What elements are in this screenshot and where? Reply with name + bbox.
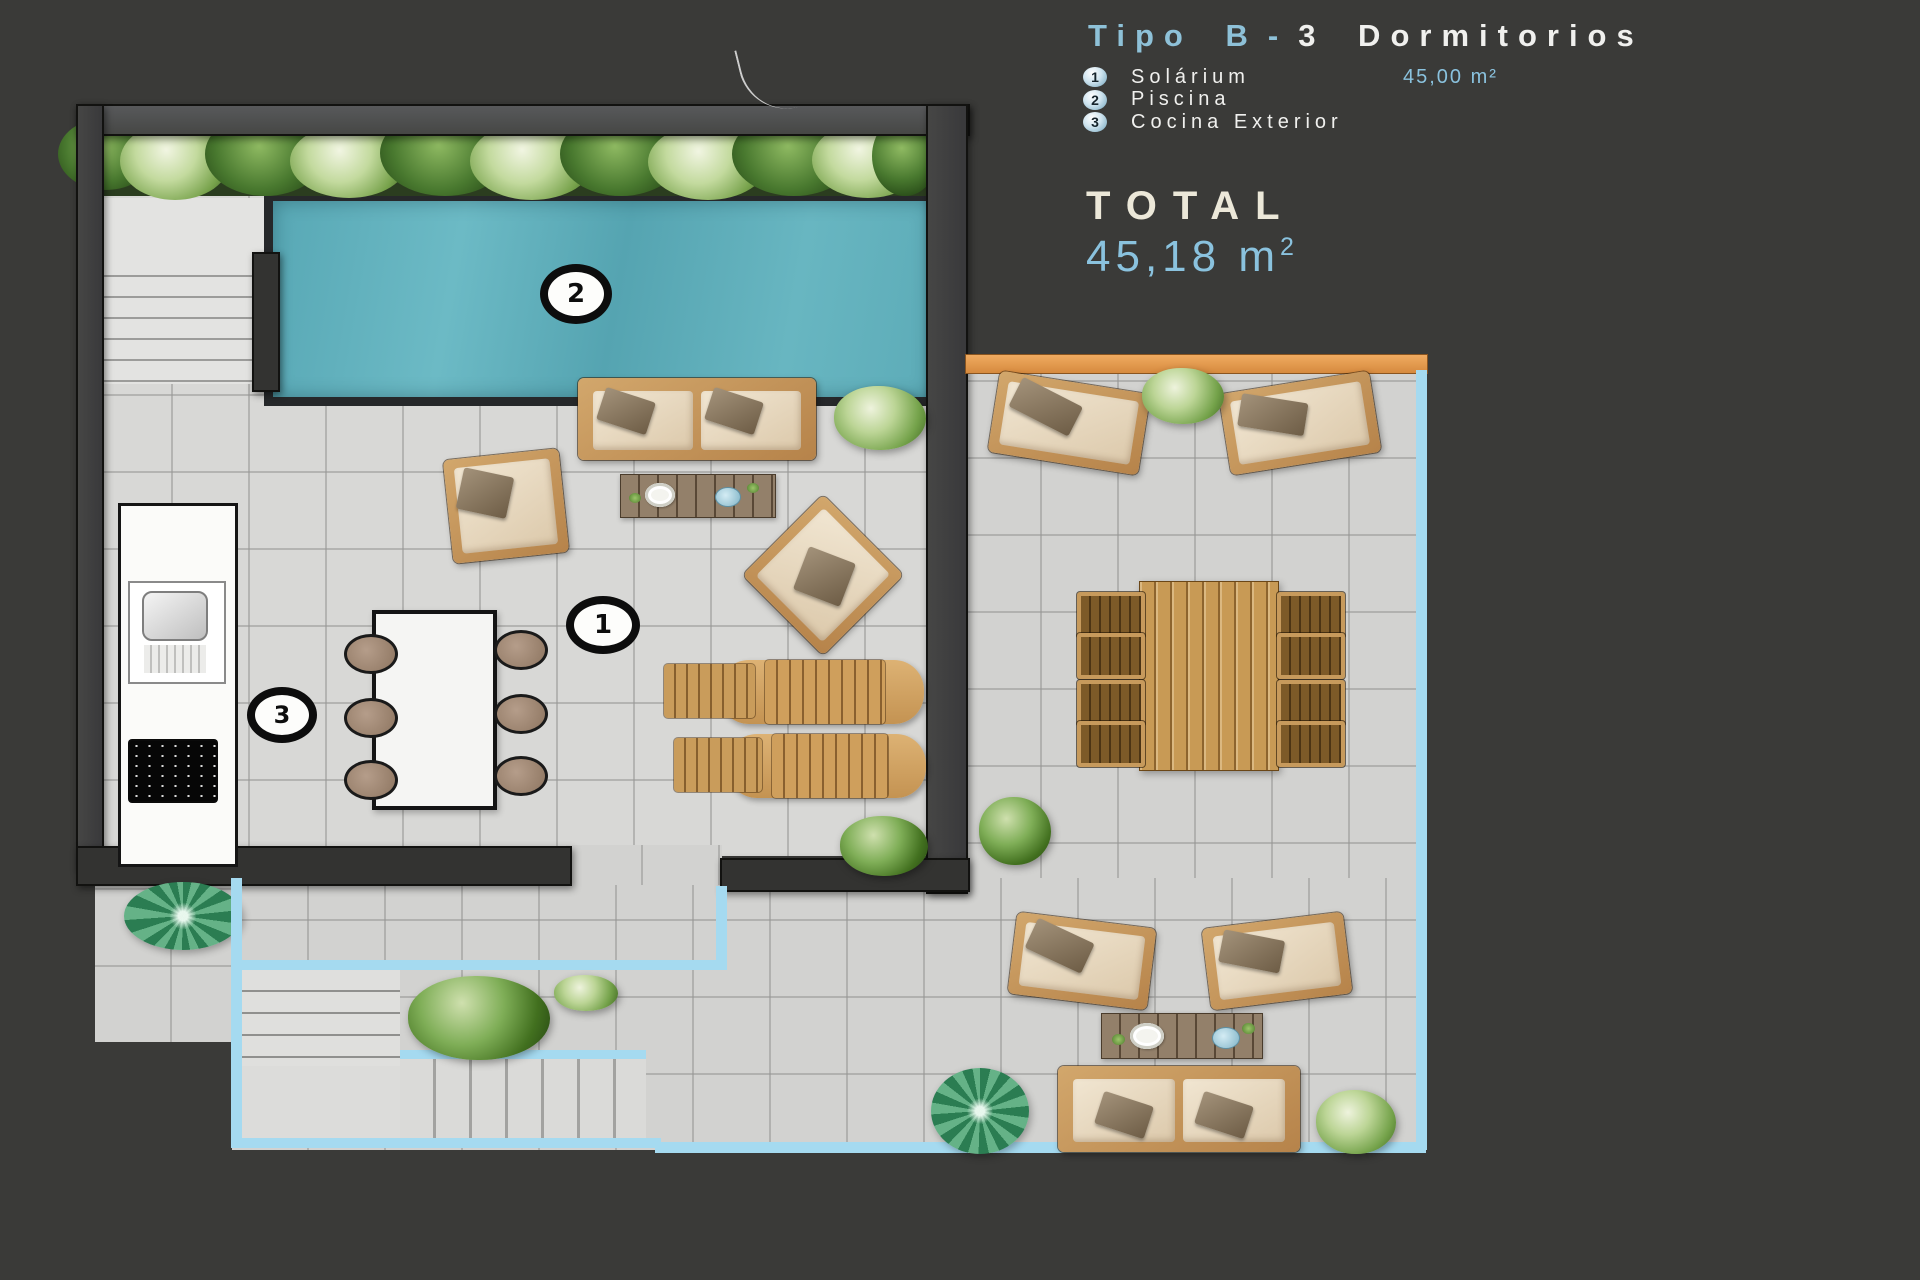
legend-bullet-3: 3 [1083, 112, 1107, 132]
bowl [1212, 1027, 1240, 1049]
terrace-dining-table [1139, 581, 1279, 771]
coffee-table [620, 474, 776, 518]
bush [840, 816, 928, 876]
bush [979, 797, 1051, 865]
title-accent: Tipo B [1088, 18, 1258, 53]
lounger-backrest [674, 738, 762, 792]
kitchen-sink [128, 581, 226, 684]
outdoor-sofa [578, 378, 816, 460]
terrace-edge-line [716, 886, 727, 968]
wall-top [76, 104, 970, 136]
wall-right [926, 104, 968, 894]
marker-solarium: 1 [566, 596, 640, 654]
legend: 1 Solárium 45,00 m² 2 Piscina 3 Cocina E… [1083, 66, 1498, 134]
dish [1130, 1023, 1164, 1049]
stairs-upper-flight [242, 970, 400, 1066]
page-title: Tipo B-3 Dormitorios [1088, 18, 1644, 54]
dining-chair [494, 694, 548, 734]
bush [554, 975, 618, 1011]
sink-drainer [144, 645, 206, 673]
stairs-landing [242, 1066, 400, 1142]
wall-bottom-east [720, 858, 970, 892]
doorway-floor-patch [566, 845, 722, 885]
pool-stairs [98, 198, 266, 384]
terrace-edge-line [231, 878, 242, 1148]
bowl [715, 487, 741, 507]
terrace-edge-line [655, 1142, 1426, 1153]
sun-lounger [674, 734, 926, 798]
lounger-seat [765, 660, 885, 724]
marker-cocina: 3 [247, 687, 317, 743]
armchair [1008, 912, 1157, 1010]
marker-piscina: 2 [540, 264, 612, 324]
total-value-sup: 2 [1280, 233, 1299, 261]
terrace-dining-chair [1277, 680, 1345, 726]
total-value: 45,18 m2 [1086, 232, 1299, 282]
pool-side-wall [252, 252, 280, 392]
legend-label: Piscina [1131, 88, 1403, 111]
cooktop [130, 741, 216, 801]
dining-chair [344, 698, 398, 738]
dish [645, 483, 675, 507]
terrace-dining-chair [1277, 592, 1345, 638]
terrace-dining-chair [1077, 721, 1145, 767]
pool-stairs-treads [98, 256, 266, 384]
terrace-dining-chair [1277, 721, 1345, 767]
kitchen-counter [118, 503, 238, 867]
title-rest: 3 Dormitorios [1298, 18, 1644, 53]
terrace-edge-line [231, 1138, 661, 1148]
wall-left [76, 104, 104, 870]
armchair [1202, 912, 1353, 1011]
table-plant [1112, 1034, 1125, 1045]
table-plant [629, 493, 641, 503]
outdoor-sofa [1058, 1066, 1300, 1152]
legend-bullet-2: 2 [1083, 90, 1107, 110]
lounger-seat [772, 734, 888, 798]
palm-plant [931, 1068, 1029, 1154]
terrace-dining-chair [1077, 633, 1145, 679]
dining-chair [494, 756, 548, 796]
lounger-backrest [664, 664, 755, 718]
total-value-number: 45,18 m [1086, 232, 1280, 281]
legend-area: 45,00 m² [1403, 66, 1498, 89]
armchair [443, 448, 569, 564]
total-label: TOTAL [1086, 184, 1296, 229]
coffee-table [1101, 1013, 1263, 1059]
floor-plan-canvas: 2 1 3 Tipo B-3 Dormitorios 1 Solárium 45… [0, 0, 1920, 1280]
bush [408, 976, 550, 1060]
terrace-dining-chair [1277, 633, 1345, 679]
title-dash: - [1268, 18, 1288, 53]
legend-bullet-1: 1 [1083, 67, 1107, 87]
legend-label: Solárium [1131, 66, 1403, 89]
stairs-lower-flight [400, 1058, 646, 1142]
legend-item-cocina: 3 Cocina Exterior [1083, 111, 1498, 134]
table-plant [1242, 1023, 1255, 1034]
dining-chair [344, 760, 398, 800]
palm-plant [124, 882, 242, 950]
dining-chair [494, 630, 548, 670]
dining-chair [344, 634, 398, 674]
legend-item-piscina: 2 Piscina [1083, 89, 1498, 112]
sink-basin [142, 591, 208, 641]
legend-item-solarium: 1 Solárium 45,00 m² [1083, 66, 1498, 89]
bush [1142, 368, 1224, 424]
bush [1316, 1090, 1396, 1154]
terrace-edge-line [1416, 370, 1427, 1150]
terrace-dining-chair [1077, 680, 1145, 726]
sun-lounger [664, 660, 924, 724]
terrace-dining-chair [1077, 592, 1145, 638]
bush [834, 386, 926, 450]
terrace-edge-line [231, 960, 727, 970]
legend-label: Cocina Exterior [1131, 111, 1403, 134]
table-plant [747, 483, 759, 493]
